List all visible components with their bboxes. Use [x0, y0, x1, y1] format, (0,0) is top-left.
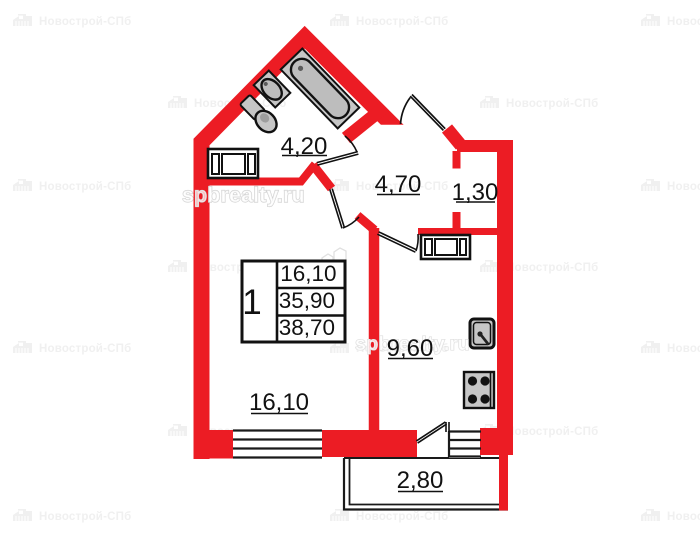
svg-text:16,10: 16,10: [280, 261, 336, 286]
svg-text:spbrealty.ru: spbrealty.ru: [182, 183, 305, 207]
svg-text:Новострой-СПб: Новострой-СПб: [39, 181, 131, 193]
svg-text:38,70: 38,70: [279, 315, 335, 340]
svg-text:1: 1: [242, 283, 261, 322]
svg-text:Новострой-СПб: Новострой-СПб: [506, 426, 598, 438]
svg-text:Новострой-СПб: Новострой-СПб: [39, 16, 131, 28]
svg-text:Новострой-СПб: Новострой-СПб: [506, 262, 598, 274]
svg-text:2,80: 2,80: [397, 467, 444, 494]
svg-text:16,10: 16,10: [249, 389, 309, 416]
svg-text:Новострой-СПб: Новострой-СПб: [356, 16, 448, 28]
svg-text:Новострой-СПб: Новострой-СПб: [39, 511, 131, 523]
svg-text:Новострой-СПб: Новострой-СПб: [667, 343, 700, 355]
svg-text:35,90: 35,90: [279, 288, 335, 313]
svg-text:Новострой-СПб: Новострой-СПб: [356, 511, 448, 523]
svg-text:Новострой-СПб: Новострой-СПб: [506, 98, 598, 110]
svg-text:Новострой-СПб: Новострой-СПб: [39, 343, 131, 355]
svg-text:Новострой-СПб: Новострой-СПб: [667, 511, 700, 523]
svg-text:Новострой-СПб: Новострой-СПб: [667, 16, 700, 28]
svg-text:Новострой-СПб: Новострой-СПб: [667, 181, 700, 193]
